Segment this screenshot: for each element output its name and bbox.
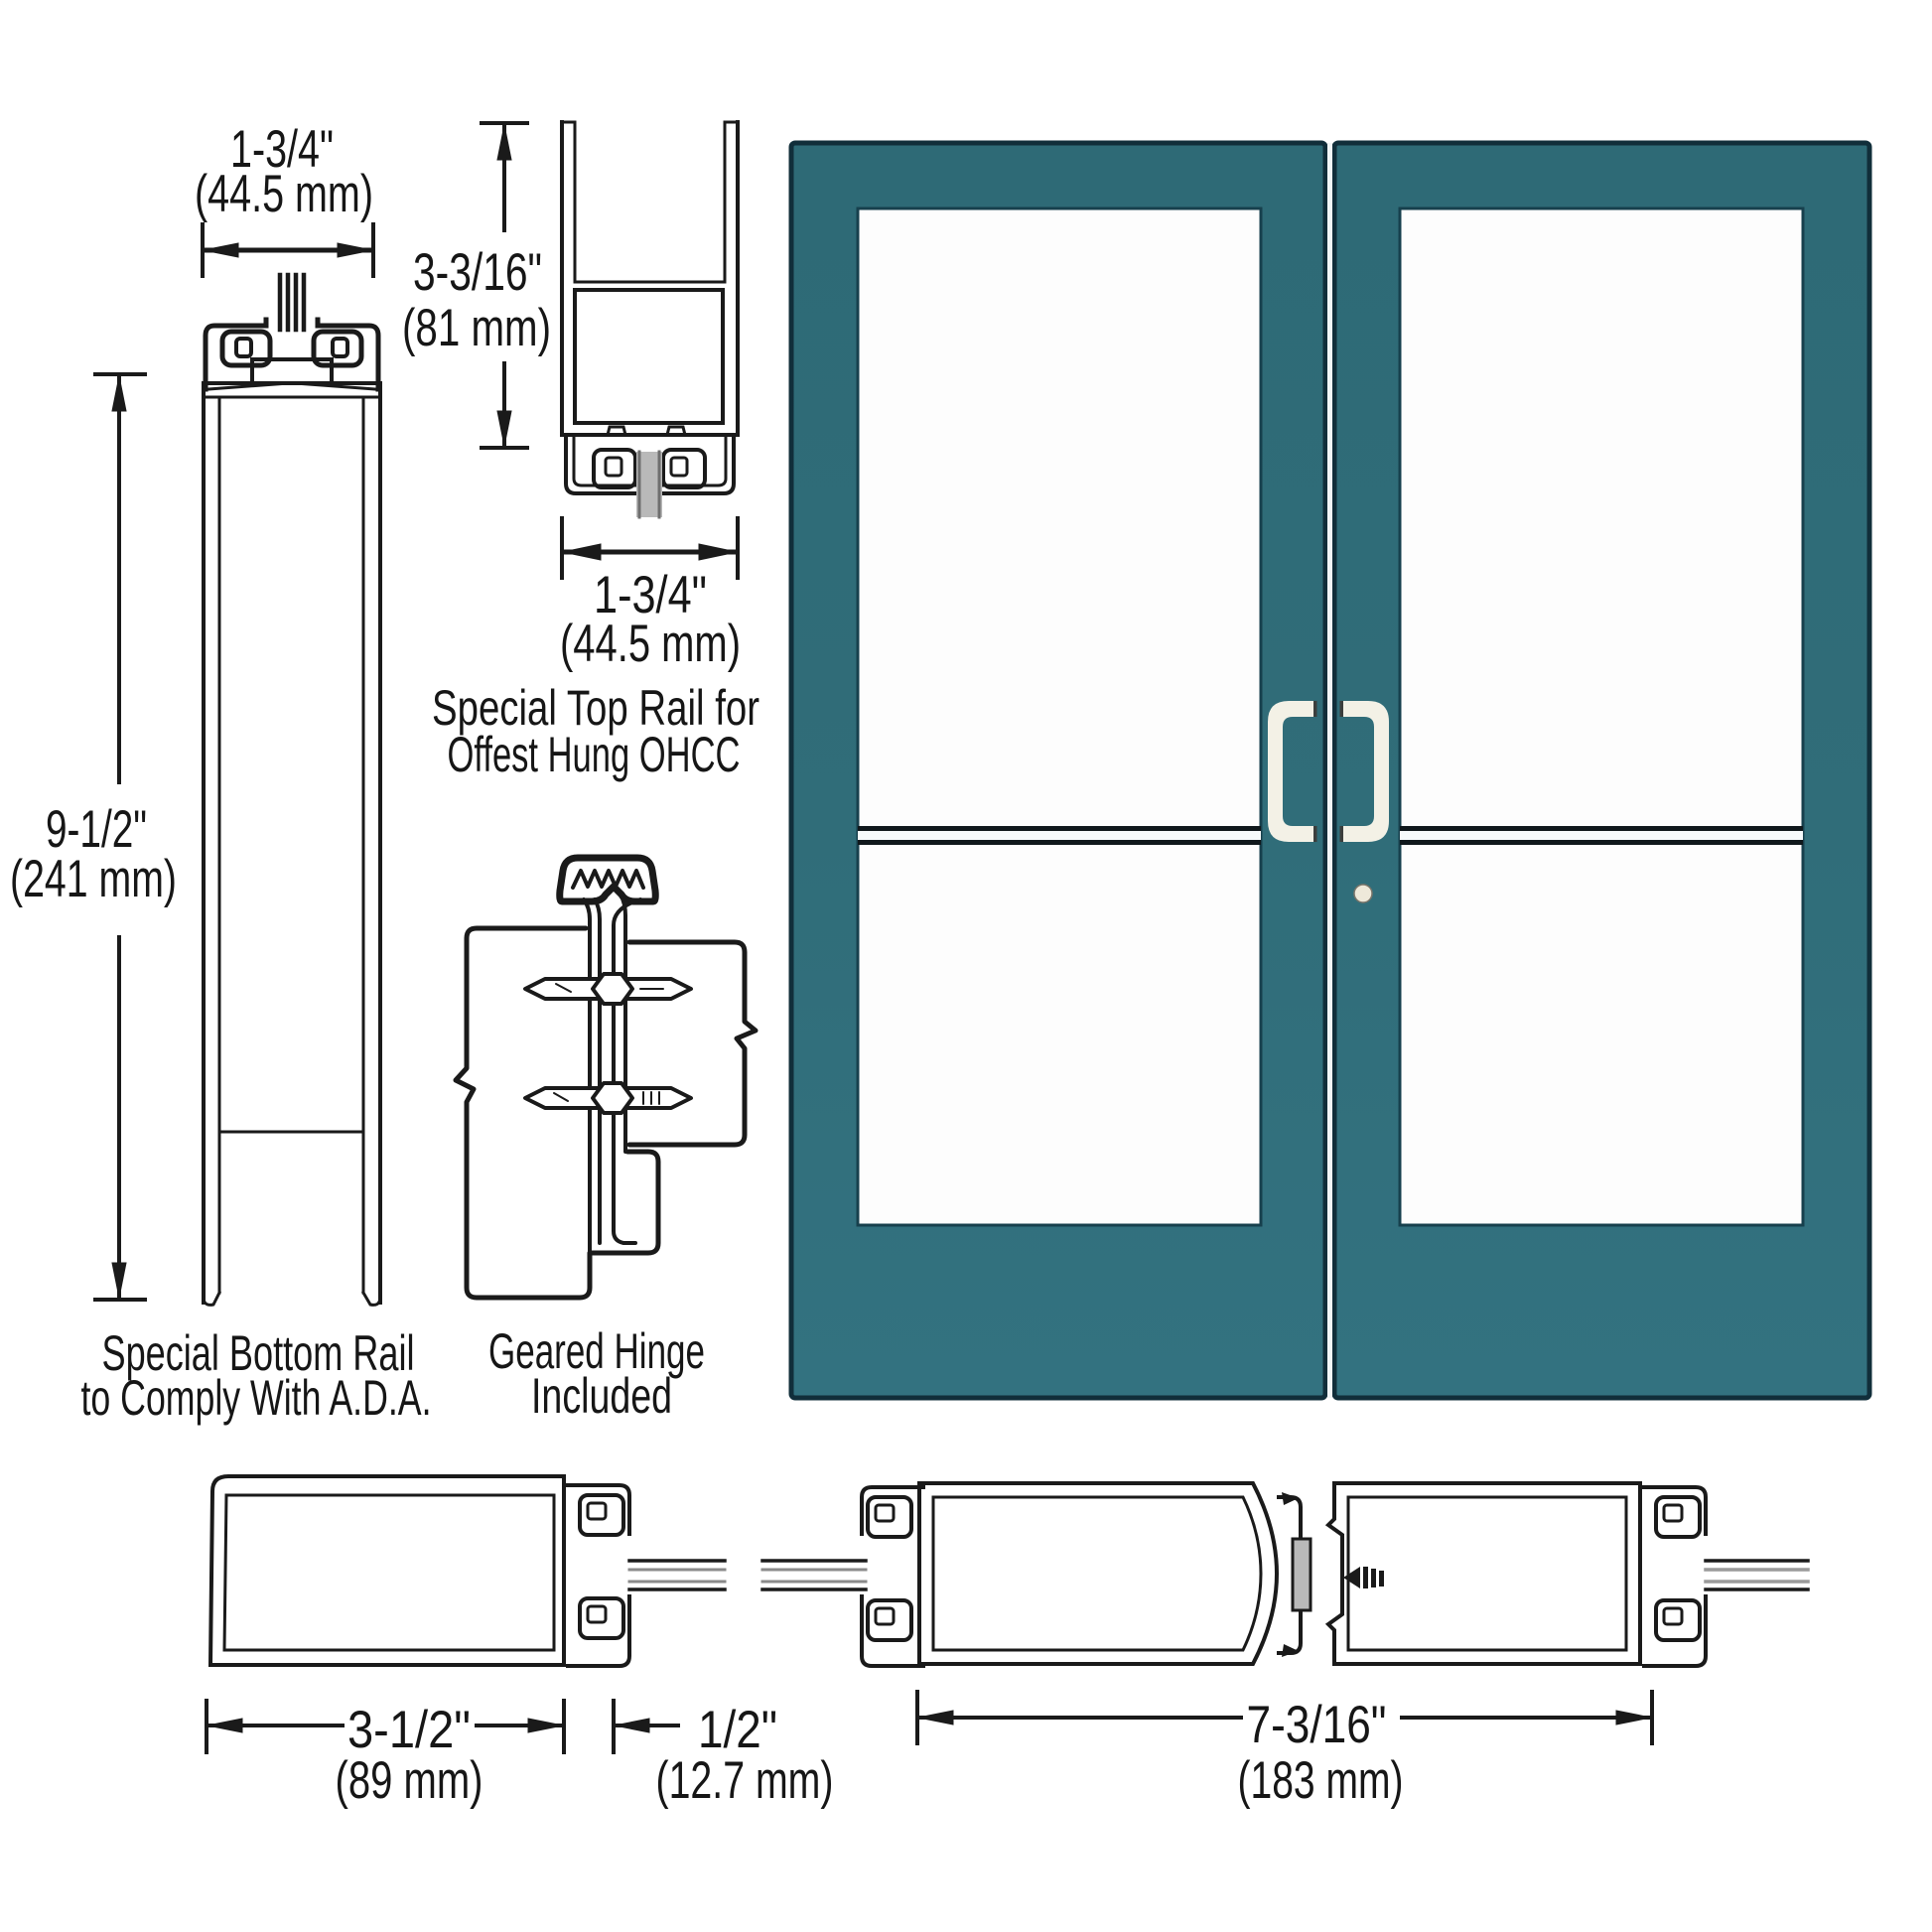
svg-text:(44.5 mm): (44.5 mm) (560, 615, 741, 673)
svg-text:(89 mm): (89 mm) (336, 1751, 483, 1810)
svg-text:Included: Included (531, 1368, 672, 1424)
svg-text:3-3/16": 3-3/16" (413, 243, 542, 302)
svg-text:(44.5 mm): (44.5 mm) (195, 165, 373, 223)
svg-text:7-3/16": 7-3/16" (1247, 1696, 1387, 1754)
svg-text:(81 mm): (81 mm) (402, 299, 551, 357)
svg-text:(183 mm): (183 mm) (1238, 1751, 1404, 1810)
svg-text:(241 mm): (241 mm) (10, 850, 177, 908)
svg-text:(12.7 mm): (12.7 mm) (656, 1751, 834, 1810)
svg-text:to Comply With A.D.A.: to Comply With A.D.A. (81, 1370, 432, 1426)
svg-text:Offest Hung OHCC: Offest Hung OHCC (448, 727, 741, 782)
